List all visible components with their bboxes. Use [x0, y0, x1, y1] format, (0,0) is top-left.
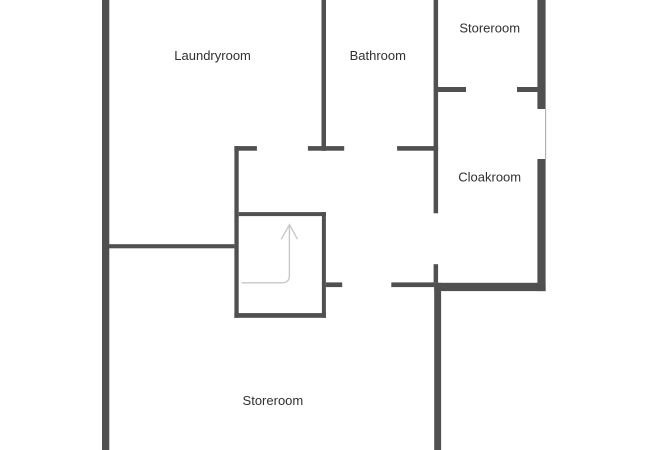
- svg-text:Bathroom: Bathroom: [350, 48, 406, 63]
- svg-text:Cloakroom: Cloakroom: [458, 169, 521, 184]
- svg-text:Storeroom: Storeroom: [459, 21, 520, 36]
- svg-text:Laundryroom: Laundryroom: [174, 48, 251, 63]
- svg-text:Storeroom: Storeroom: [243, 393, 304, 408]
